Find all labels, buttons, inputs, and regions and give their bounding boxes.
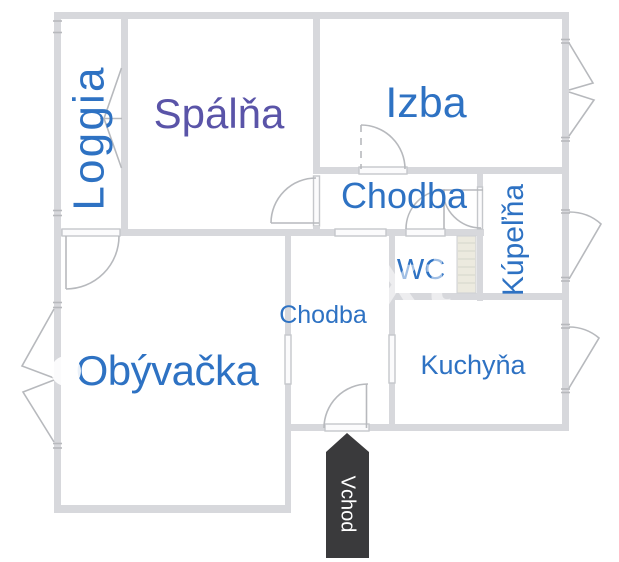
svg-text:Chodba: Chodba (341, 175, 468, 216)
svg-text:Loggia: Loggia (65, 65, 114, 210)
svg-text:Kuchyňa: Kuchyňa (420, 350, 526, 380)
svg-text:Izba: Izba (385, 79, 466, 127)
svg-text:Kúpeľňa: Kúpeľňa (497, 184, 530, 296)
svg-text:Vchod: Vchod (337, 476, 359, 533)
svg-text:Spálňa: Spálňa (154, 90, 285, 137)
svg-text:ext: ext (327, 235, 458, 323)
svg-text:Obývačka: Obývačka (76, 347, 260, 394)
